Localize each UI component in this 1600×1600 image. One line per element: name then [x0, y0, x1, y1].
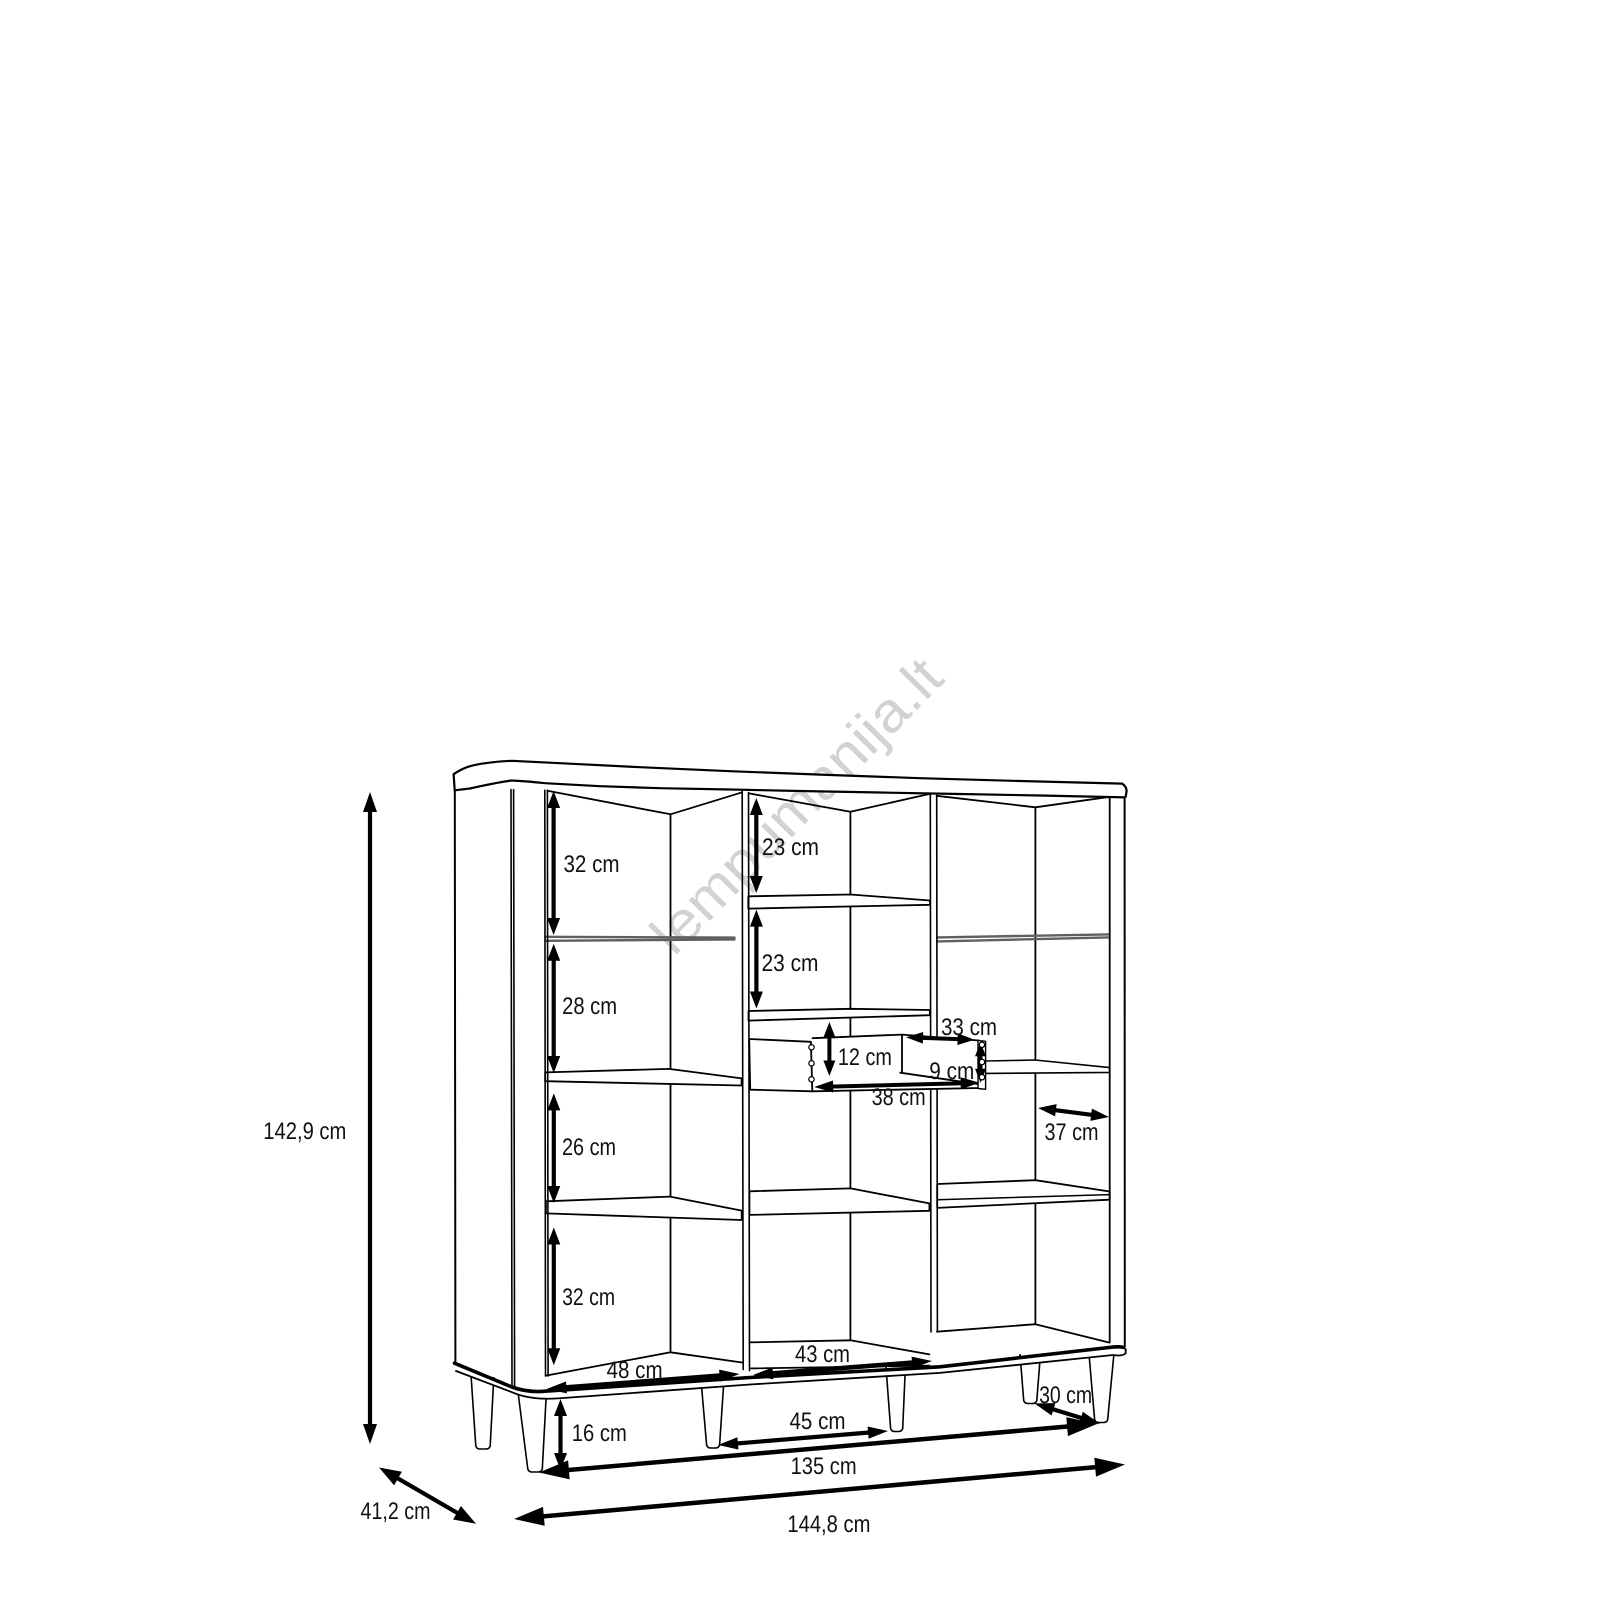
svg-text:43 cm: 43 cm: [795, 1341, 850, 1368]
svg-text:23 cm: 23 cm: [762, 950, 819, 977]
svg-text:144,8 cm: 144,8 cm: [787, 1511, 870, 1538]
svg-text:12 cm: 12 cm: [838, 1044, 892, 1071]
svg-text:32 cm: 32 cm: [564, 851, 620, 878]
svg-text:26 cm: 26 cm: [562, 1134, 616, 1161]
svg-text:33 cm: 33 cm: [941, 1014, 997, 1041]
svg-text:142,9 cm: 142,9 cm: [263, 1118, 346, 1145]
svg-text:16 cm: 16 cm: [572, 1420, 627, 1447]
svg-text:41,2 cm: 41,2 cm: [361, 1498, 431, 1525]
svg-text:23 cm: 23 cm: [762, 834, 819, 861]
svg-text:30 cm: 30 cm: [1039, 1382, 1092, 1409]
svg-text:135 cm: 135 cm: [791, 1453, 857, 1480]
svg-text:38 cm: 38 cm: [872, 1084, 926, 1111]
svg-text:45 cm: 45 cm: [790, 1408, 846, 1435]
svg-text:48 cm: 48 cm: [607, 1357, 663, 1384]
svg-text:28 cm: 28 cm: [562, 993, 617, 1020]
svg-text:37 cm: 37 cm: [1045, 1119, 1099, 1146]
svg-text:32 cm: 32 cm: [562, 1284, 615, 1311]
